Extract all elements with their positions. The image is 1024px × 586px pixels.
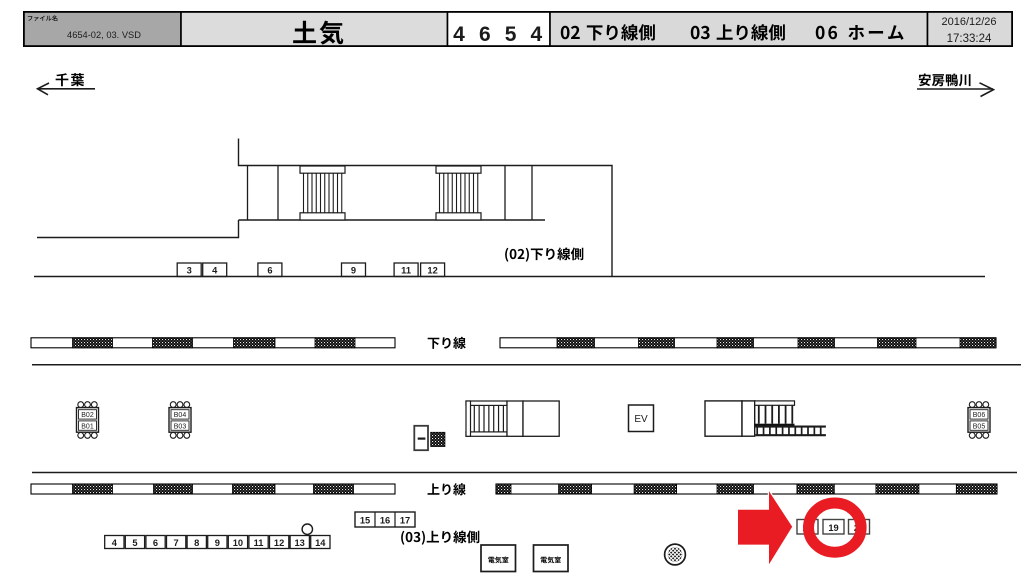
svg-text:4: 4 [453, 23, 465, 46]
svg-text:6: 6 [153, 538, 158, 548]
svg-text:B01: B01 [81, 423, 94, 430]
svg-text:5: 5 [132, 538, 137, 548]
svg-text:4: 4 [212, 266, 218, 276]
svg-text:2016/12/26: 2016/12/26 [941, 16, 996, 28]
svg-text:17:33:24: 17:33:24 [947, 33, 992, 45]
svg-text:B05: B05 [973, 423, 986, 430]
svg-text:8: 8 [194, 538, 199, 548]
svg-text:6: 6 [479, 23, 491, 46]
svg-text:6: 6 [267, 266, 272, 276]
svg-text:13: 13 [295, 538, 305, 548]
svg-text:B06: B06 [973, 412, 986, 419]
svg-text:7: 7 [174, 538, 179, 548]
svg-text:14: 14 [315, 538, 326, 548]
svg-text:12: 12 [274, 538, 284, 548]
svg-text:5: 5 [505, 23, 517, 46]
svg-text:12: 12 [427, 266, 437, 276]
svg-text:15: 15 [360, 516, 370, 526]
svg-text:B02: B02 [81, 412, 94, 419]
svg-text:B03: B03 [174, 423, 187, 430]
svg-text:EV: EV [634, 414, 648, 425]
svg-text:B04: B04 [174, 412, 187, 419]
svg-text:19: 19 [828, 523, 838, 533]
svg-text:3: 3 [187, 266, 192, 276]
svg-text:9: 9 [215, 538, 220, 548]
svg-text:4: 4 [531, 23, 543, 46]
svg-text:10: 10 [233, 538, 243, 548]
svg-text:4: 4 [112, 538, 118, 548]
svg-text:16: 16 [380, 516, 390, 526]
svg-text:17: 17 [400, 516, 410, 526]
svg-text:11: 11 [401, 266, 411, 276]
svg-text:11: 11 [254, 538, 264, 548]
svg-text:9: 9 [351, 266, 356, 276]
svg-text:4654-02, 03. VSD: 4654-02, 03. VSD [67, 30, 141, 40]
